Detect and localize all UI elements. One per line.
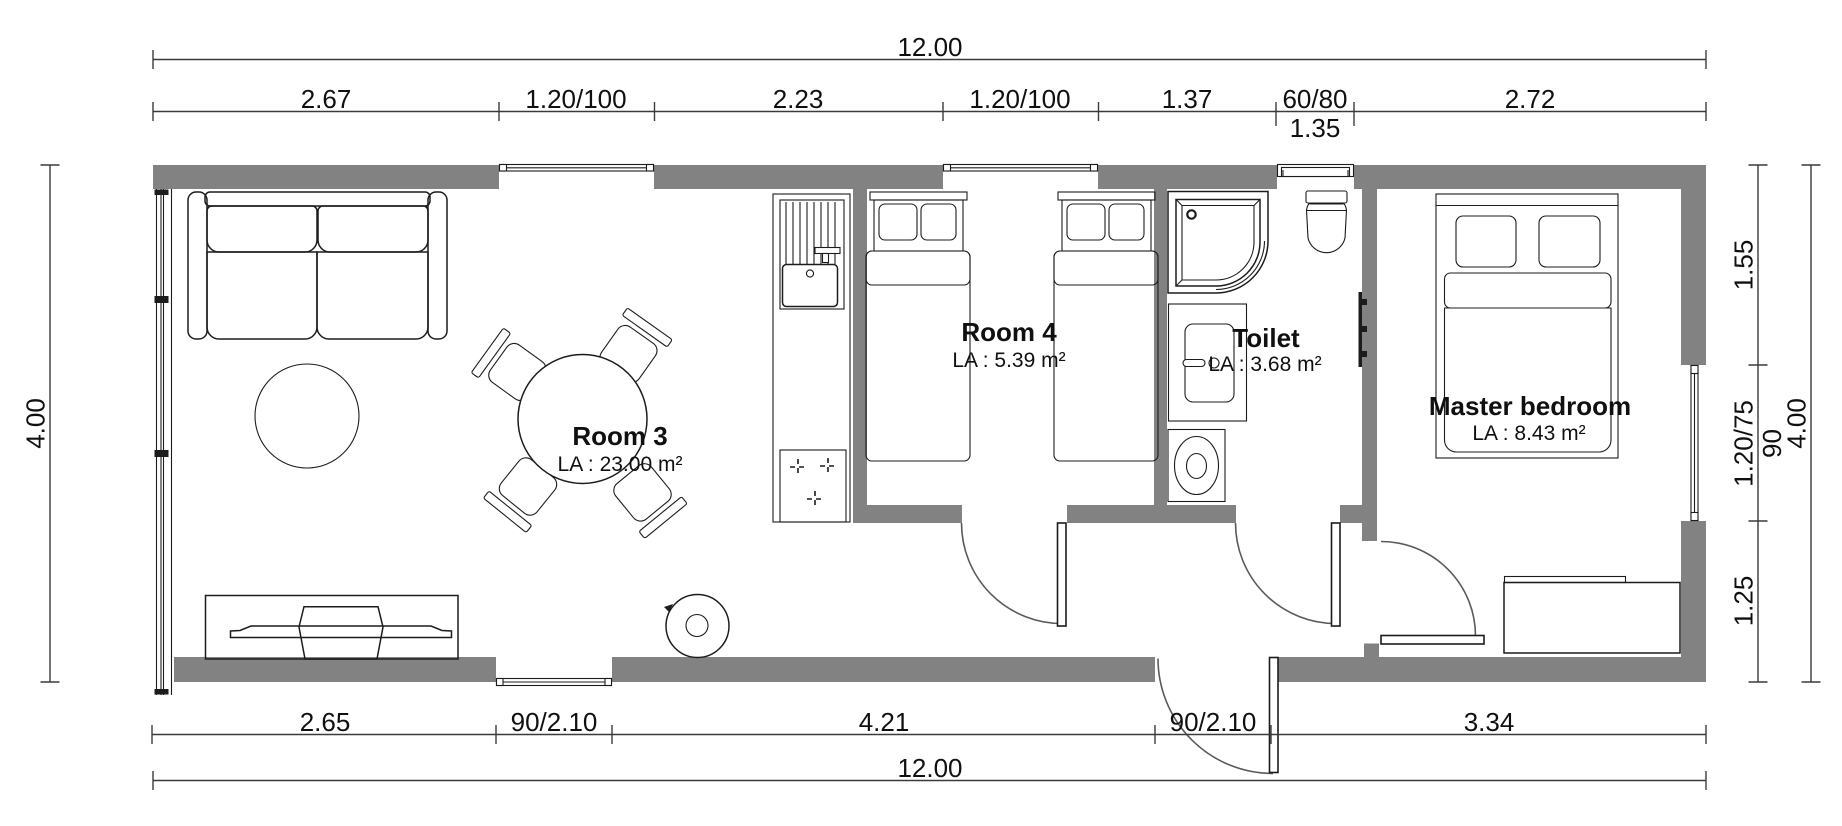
svg-text:2.67: 2.67: [301, 84, 352, 114]
svg-text:90/2.10: 90/2.10: [1170, 707, 1257, 737]
svg-text:Toilet: Toilet: [1232, 323, 1300, 353]
svg-text:LA : 3.68 m²: LA : 3.68 m²: [1208, 353, 1321, 376]
svg-text:2.23: 2.23: [773, 84, 824, 114]
svg-text:1.25: 1.25: [1729, 576, 1759, 627]
svg-text:90/2.10: 90/2.10: [511, 707, 598, 737]
svg-text:1.55: 1.55: [1729, 240, 1759, 291]
svg-text:4.00: 4.00: [1782, 398, 1812, 449]
svg-text:Master bedroom: Master bedroom: [1429, 391, 1631, 421]
svg-text:12.00: 12.00: [897, 32, 962, 62]
svg-text:1.20/100: 1.20/100: [525, 84, 626, 114]
svg-text:LA : 23.00 m²: LA : 23.00 m²: [558, 453, 683, 476]
svg-text:2.72: 2.72: [1505, 84, 1556, 114]
svg-text:60/80: 60/80: [1282, 84, 1347, 114]
svg-text:3.34: 3.34: [1464, 707, 1515, 737]
svg-text:1.35: 1.35: [1290, 113, 1341, 143]
svg-text:4.00: 4.00: [21, 398, 51, 449]
svg-text:1.20/75: 1.20/75: [1729, 400, 1759, 487]
svg-text:Room 3: Room 3: [572, 421, 667, 451]
svg-text:LA : 5.39 m²: LA : 5.39 m²: [952, 349, 1065, 372]
svg-text:4.21: 4.21: [859, 707, 910, 737]
svg-text:2.65: 2.65: [300, 707, 351, 737]
svg-text:Room 4: Room 4: [961, 317, 1057, 347]
svg-text:1.20/100: 1.20/100: [969, 84, 1070, 114]
svg-text:12.00: 12.00: [897, 753, 962, 783]
svg-text:1.37: 1.37: [1162, 84, 1213, 114]
svg-text:LA : 8.43 m²: LA : 8.43 m²: [1472, 422, 1585, 445]
